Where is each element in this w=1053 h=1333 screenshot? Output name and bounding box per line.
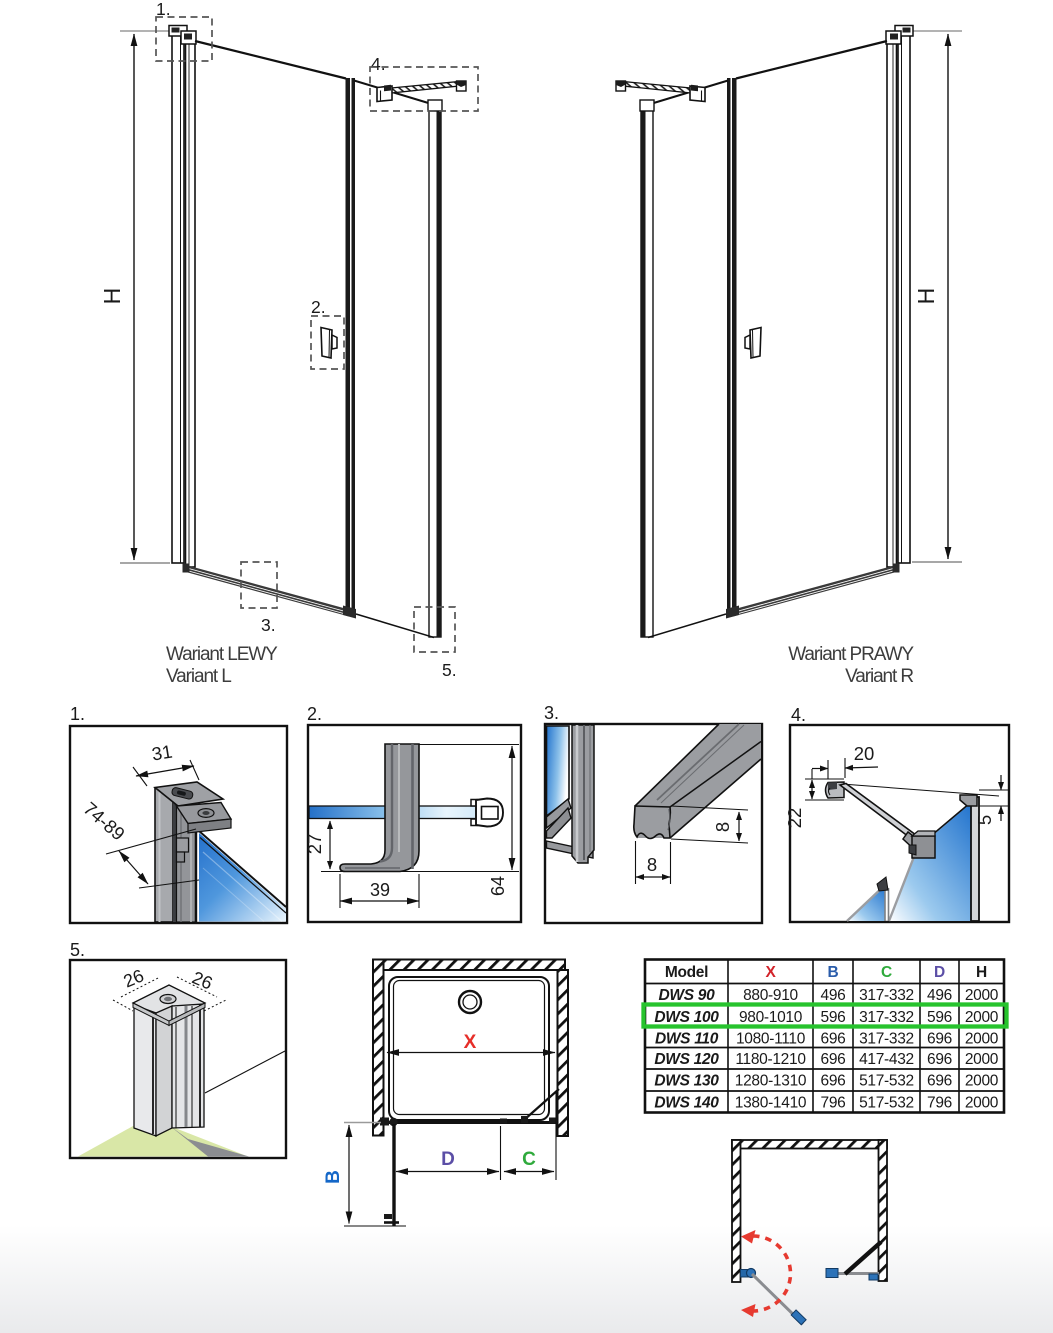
svg-text:B: B	[828, 964, 839, 981]
svg-text:2000: 2000	[965, 1051, 999, 1068]
svg-text:DWS 130: DWS 130	[654, 1073, 719, 1090]
svg-text:696: 696	[927, 1073, 952, 1090]
svg-text:696: 696	[821, 1051, 846, 1068]
svg-text:DWS 100: DWS 100	[654, 1009, 719, 1026]
svg-text:X: X	[464, 1032, 477, 1053]
svg-text:2.: 2.	[307, 704, 322, 724]
svg-text:696: 696	[821, 1031, 846, 1048]
svg-text:C: C	[522, 1149, 536, 1170]
svg-text:20: 20	[854, 743, 875, 764]
svg-text:8: 8	[712, 822, 733, 832]
svg-text:796: 796	[821, 1095, 846, 1112]
svg-text:4.: 4.	[791, 705, 806, 725]
svg-text:D: D	[934, 964, 945, 981]
svg-text:1280-1310: 1280-1310	[735, 1073, 807, 1090]
svg-text:22: 22	[784, 808, 805, 829]
svg-text:980-1010: 980-1010	[739, 1009, 803, 1026]
svg-text:1080-1110: 1080-1110	[736, 1031, 806, 1048]
svg-text:1.: 1.	[70, 704, 85, 724]
svg-text:Variant R: Variant R	[845, 666, 913, 687]
svg-text:2000: 2000	[965, 1031, 999, 1048]
svg-text:Variant L: Variant L	[166, 666, 231, 687]
svg-text:39: 39	[370, 880, 390, 900]
svg-text:596: 596	[927, 1009, 952, 1026]
svg-text:Wariant LEWY: Wariant LEWY	[166, 644, 278, 665]
svg-text:317-332: 317-332	[859, 1009, 914, 1026]
svg-text:417-432: 417-432	[859, 1051, 914, 1068]
svg-text:DWS 110: DWS 110	[655, 1031, 719, 1048]
svg-text:517-532: 517-532	[859, 1095, 914, 1112]
svg-text:5: 5	[974, 815, 995, 825]
svg-text:DWS 120: DWS 120	[654, 1051, 719, 1068]
svg-text:H: H	[913, 288, 939, 305]
svg-text:64: 64	[488, 876, 508, 896]
svg-text:H: H	[99, 288, 125, 305]
svg-text:1380-1410: 1380-1410	[735, 1095, 807, 1112]
svg-text:4.: 4.	[371, 54, 386, 74]
svg-text:5.: 5.	[442, 660, 457, 680]
svg-text:517-532: 517-532	[859, 1073, 914, 1090]
svg-text:C: C	[881, 964, 892, 981]
svg-text:DWS 140: DWS 140	[654, 1095, 719, 1112]
svg-text:696: 696	[927, 1031, 952, 1048]
svg-text:Wariant PRAWY: Wariant PRAWY	[788, 644, 914, 665]
svg-text:2.: 2.	[311, 297, 326, 317]
svg-text:696: 696	[821, 1073, 846, 1090]
svg-text:DWS 90: DWS 90	[659, 987, 716, 1004]
svg-text:796: 796	[927, 1095, 952, 1112]
svg-text:696: 696	[927, 1051, 952, 1068]
svg-text:X: X	[765, 964, 776, 981]
svg-text:2000: 2000	[965, 1095, 999, 1112]
svg-text:496: 496	[927, 987, 952, 1004]
svg-text:596: 596	[821, 1009, 846, 1026]
svg-text:B: B	[323, 1170, 344, 1184]
svg-text:8: 8	[647, 854, 657, 875]
svg-text:2000: 2000	[965, 987, 999, 1004]
svg-text:317-332: 317-332	[859, 1031, 914, 1048]
svg-text:317-332: 317-332	[859, 987, 914, 1004]
svg-text:27: 27	[304, 834, 325, 855]
svg-text:H: H	[976, 964, 987, 981]
svg-text:31: 31	[150, 741, 174, 765]
svg-text:2000: 2000	[965, 1073, 999, 1090]
svg-text:496: 496	[821, 987, 846, 1004]
svg-text:5.: 5.	[70, 940, 85, 960]
svg-text:D: D	[441, 1149, 455, 1170]
svg-text:880-910: 880-910	[743, 987, 798, 1004]
svg-text:1180-1210: 1180-1210	[735, 1051, 806, 1068]
svg-text:2000: 2000	[965, 1009, 999, 1026]
svg-text:3.: 3.	[544, 703, 559, 723]
svg-text:3.: 3.	[261, 615, 276, 635]
svg-text:Model: Model	[665, 964, 708, 981]
